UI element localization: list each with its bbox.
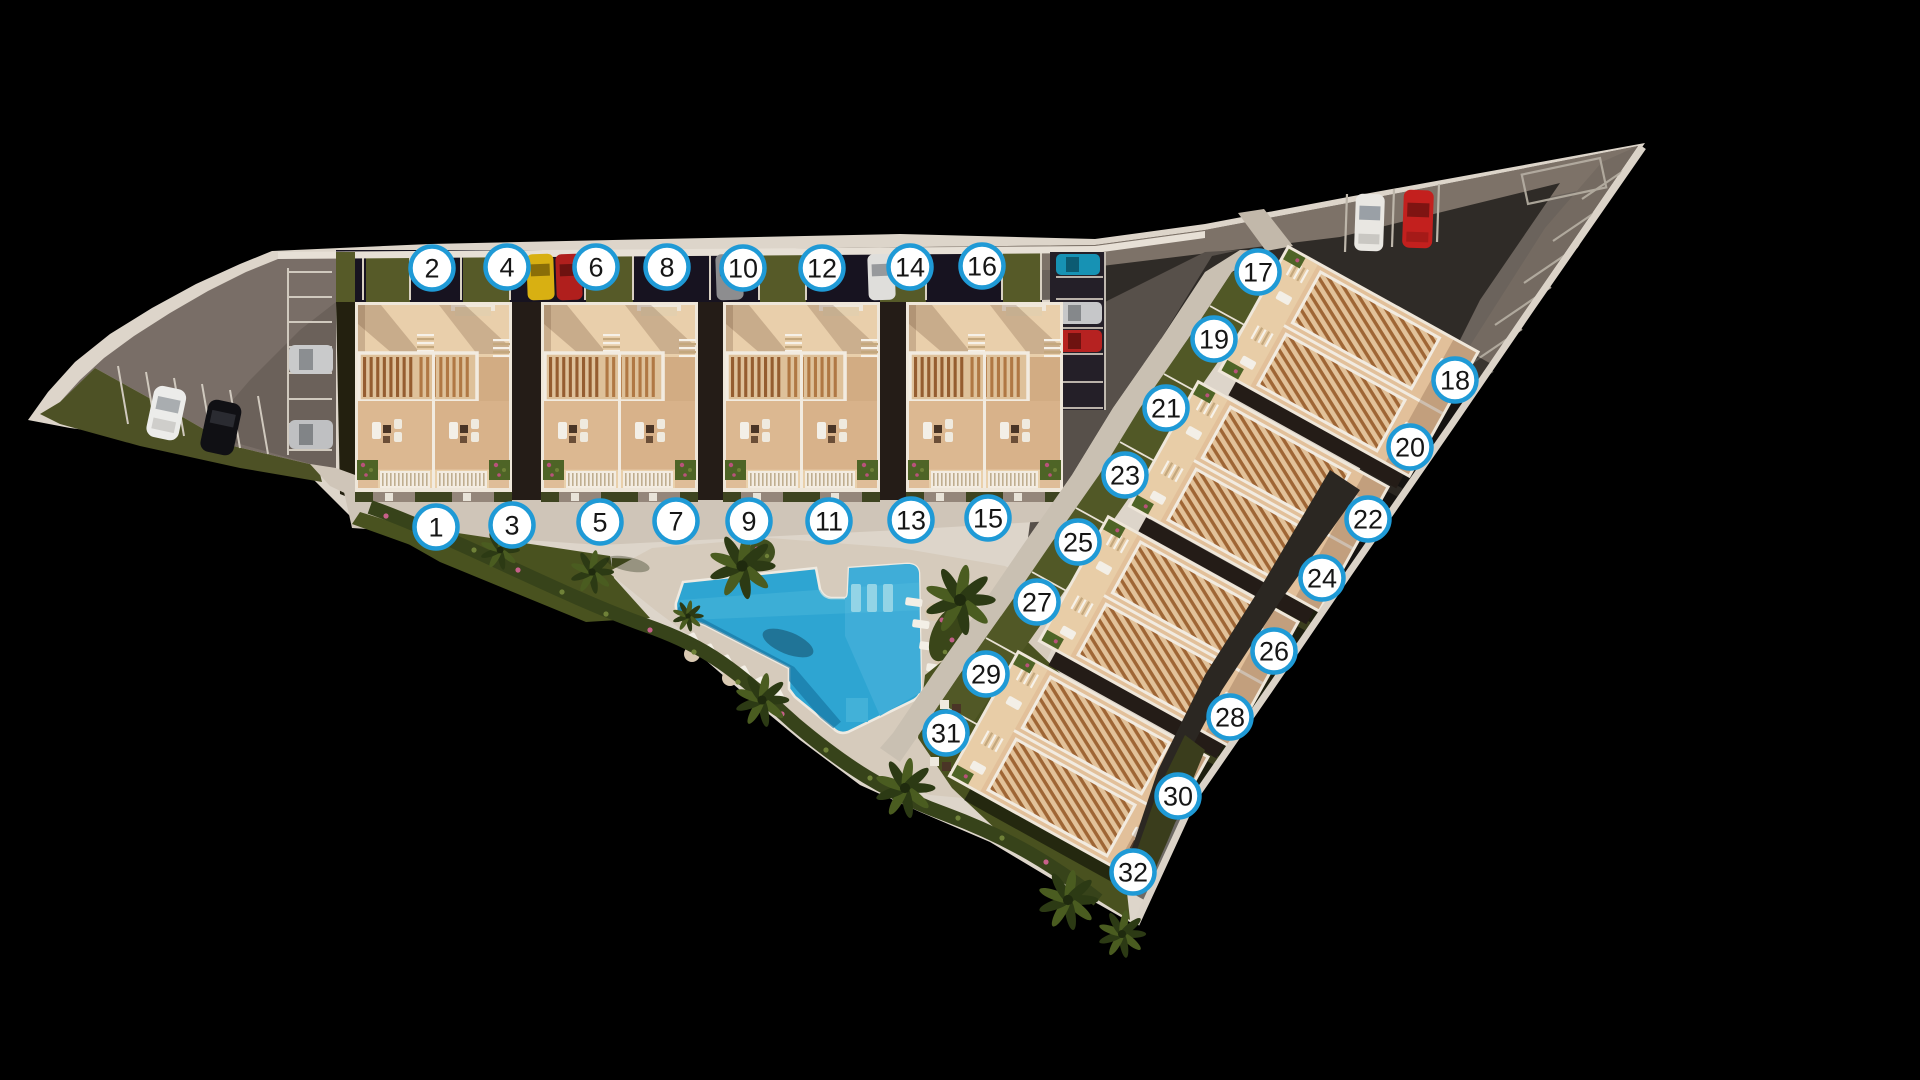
svg-text:28: 28: [1215, 703, 1245, 733]
svg-text:25: 25: [1063, 528, 1093, 558]
svg-text:29: 29: [971, 660, 1001, 690]
svg-text:8: 8: [659, 253, 674, 283]
svg-text:19: 19: [1199, 325, 1229, 355]
svg-text:23: 23: [1110, 461, 1140, 491]
svg-text:21: 21: [1151, 394, 1181, 424]
svg-text:17: 17: [1243, 258, 1273, 288]
svg-text:16: 16: [967, 252, 997, 282]
svg-text:31: 31: [931, 719, 961, 749]
svg-text:9: 9: [741, 507, 756, 537]
svg-text:10: 10: [728, 254, 758, 284]
svg-text:2: 2: [424, 254, 439, 284]
svg-text:14: 14: [895, 253, 925, 283]
svg-text:30: 30: [1163, 782, 1193, 812]
svg-text:11: 11: [815, 507, 843, 537]
svg-text:24: 24: [1307, 564, 1337, 594]
svg-text:1: 1: [428, 513, 443, 543]
svg-text:22: 22: [1353, 505, 1383, 535]
svg-text:26: 26: [1259, 637, 1289, 667]
svg-text:15: 15: [973, 504, 1003, 534]
svg-text:32: 32: [1118, 858, 1148, 888]
svg-text:5: 5: [592, 508, 607, 538]
svg-text:18: 18: [1440, 366, 1470, 396]
svg-text:7: 7: [668, 507, 683, 537]
svg-text:12: 12: [807, 254, 837, 284]
svg-text:13: 13: [896, 506, 926, 536]
svg-text:3: 3: [504, 511, 519, 541]
svg-text:27: 27: [1022, 588, 1052, 618]
svg-text:20: 20: [1395, 433, 1425, 463]
svg-text:4: 4: [499, 253, 514, 283]
svg-text:6: 6: [588, 253, 603, 283]
